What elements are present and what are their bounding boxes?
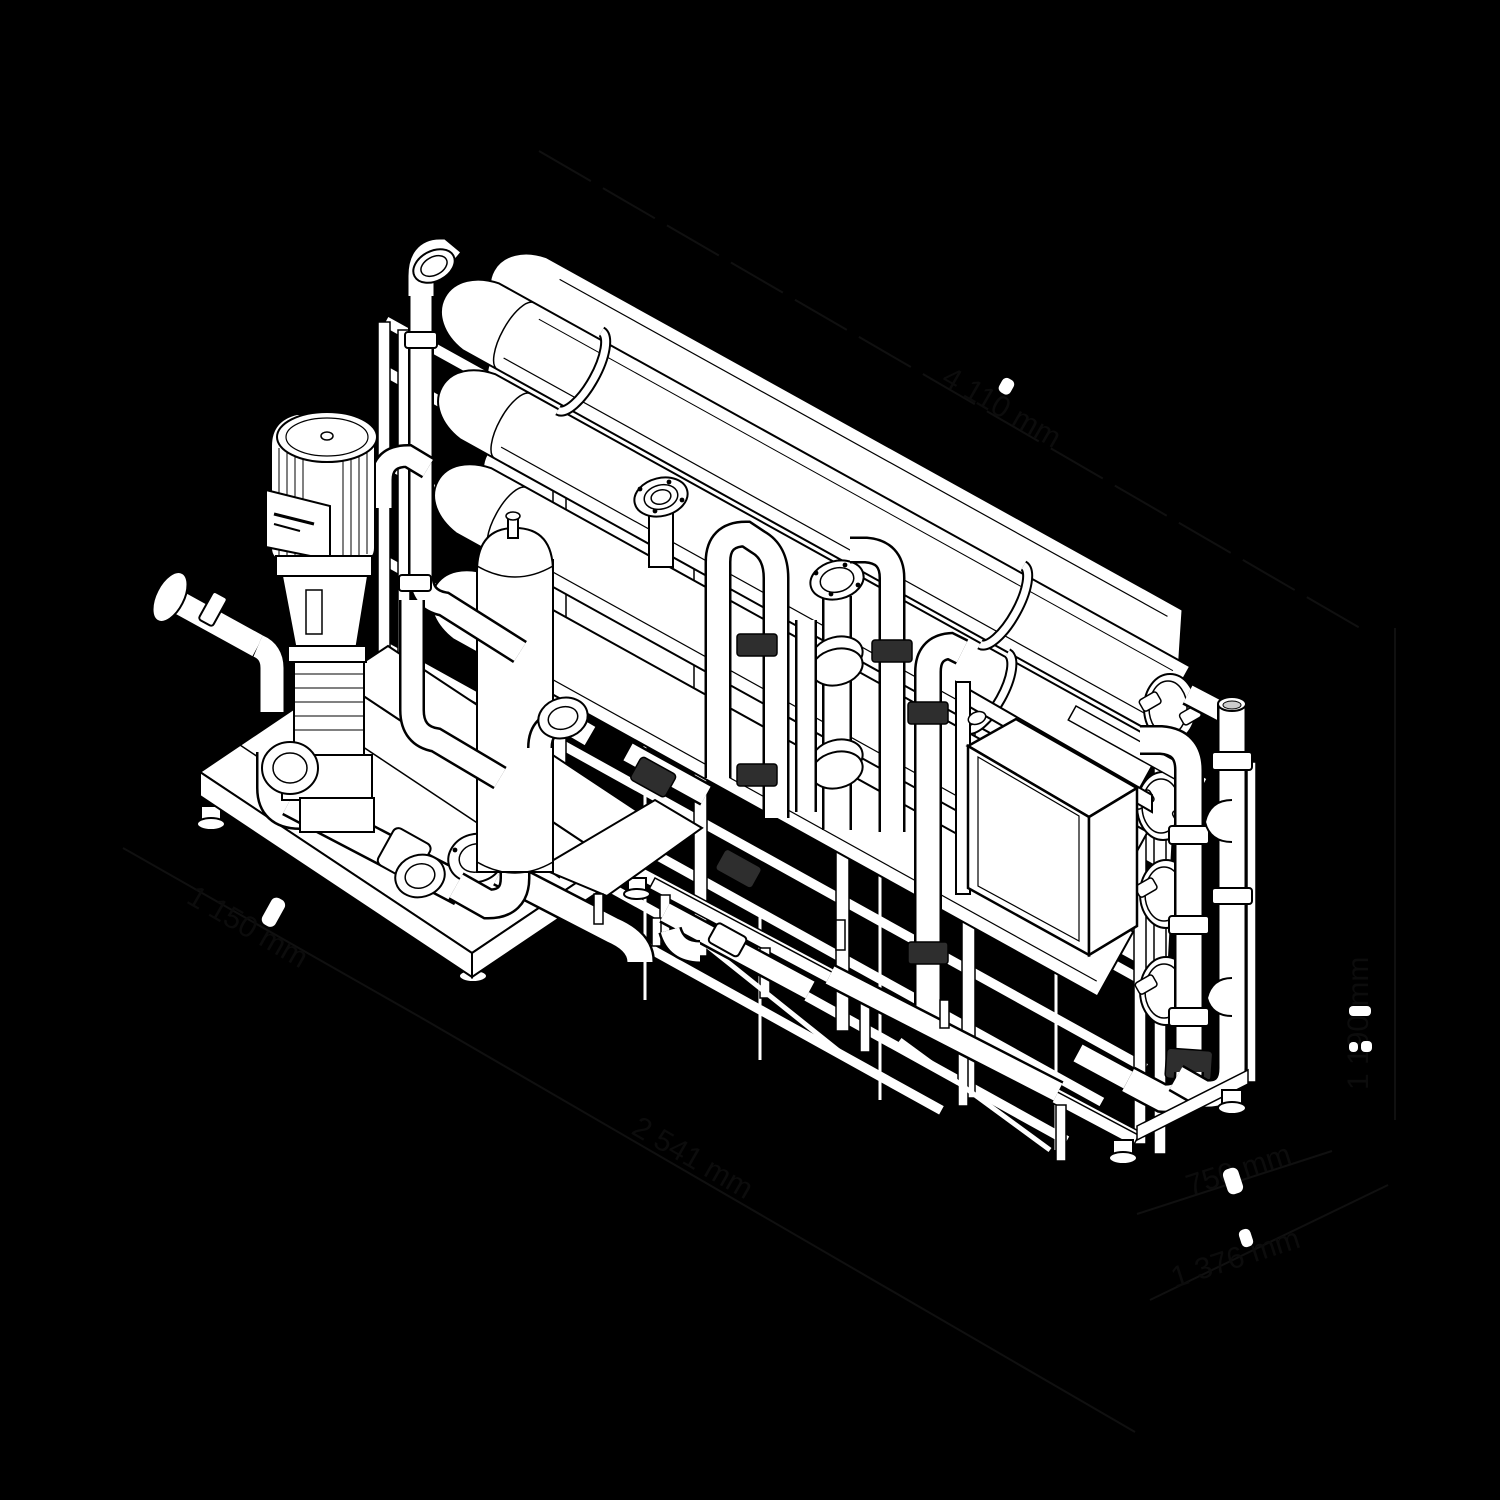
svg-text:1 190 mm: 1 190 mm	[1342, 957, 1375, 1090]
